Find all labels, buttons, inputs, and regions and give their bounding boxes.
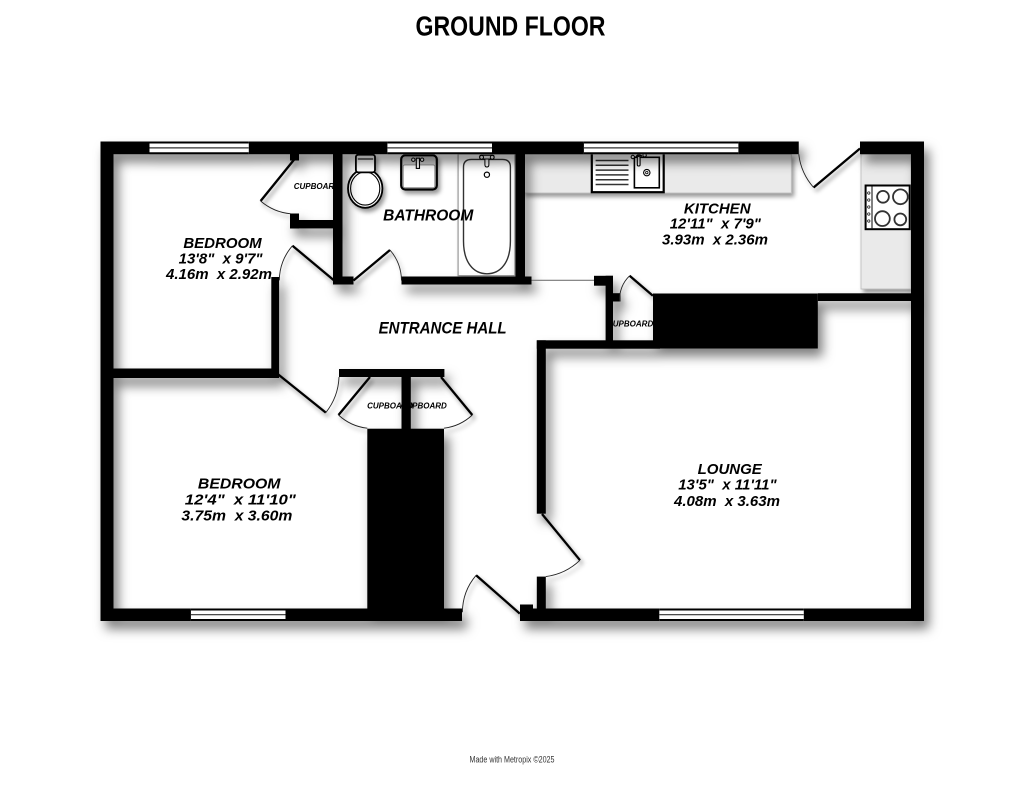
svg-text:4.08m x 3.63m: 4.08m x 3.63m [673,493,780,510]
svg-text:LOUNGE: LOUNGE [698,461,763,478]
svg-text:CUPBOARD: CUPBOARD [607,319,653,328]
svg-text:12'4" x 11'10": 12'4" x 11'10" [185,492,297,509]
svg-text:ENTRANCE HALL: ENTRANCE HALL [379,319,507,337]
svg-text:Made with Metropix ©2025: Made with Metropix ©2025 [470,755,555,765]
svg-text:BATHROOM: BATHROOM [383,208,474,225]
svg-text:3.75m x 3.60m: 3.75m x 3.60m [181,508,292,525]
svg-text:12'11" x 7'9": 12'11" x 7'9" [670,216,762,233]
svg-text:13'5" x 11'11": 13'5" x 11'11" [678,477,777,494]
svg-text:GROUND FLOOR: GROUND FLOOR [416,11,606,42]
svg-text:4.16m x 2.92m: 4.16m x 2.92m [165,266,272,283]
svg-text:BEDROOM: BEDROOM [183,235,262,252]
svg-text:BEDROOM: BEDROOM [198,476,281,493]
svg-text:3.93m x 2.36m: 3.93m x 2.36m [662,232,768,249]
